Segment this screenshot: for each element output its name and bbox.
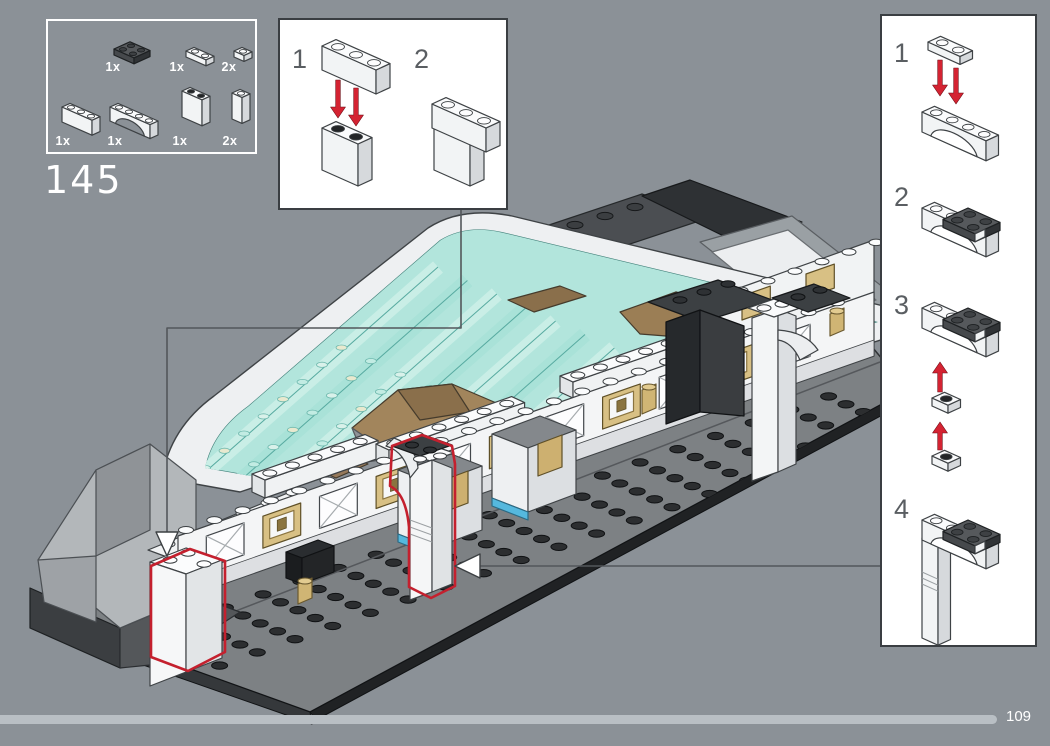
part-qty-white-1x1x2-brick: 2x bbox=[215, 134, 245, 148]
sidebar-step-3-label: 3 bbox=[894, 290, 909, 321]
instruction-page: 1x 1x 2x 1x 1x 1x 2x 145 1 2 1 2 3 4 109 bbox=[0, 0, 1050, 746]
step-number: 145 bbox=[44, 158, 123, 202]
part-qty-white-1x4-arch-brick: 1x bbox=[100, 134, 130, 148]
part-qty-dark-gray-2x2-plate: 1x bbox=[98, 60, 128, 74]
part-qty-white-1x3-brick: 1x bbox=[48, 134, 78, 148]
assembly-canvas bbox=[280, 20, 506, 208]
sidebar-inset: 1 2 3 4 bbox=[880, 14, 1037, 647]
assembly-inset: 1 2 bbox=[278, 18, 508, 210]
part-qty-white-1x2-plate: 1x bbox=[162, 60, 192, 74]
part-qty-white-1x1-plate: 2x bbox=[214, 60, 244, 74]
sidebar-canvas bbox=[882, 16, 1035, 645]
parts-canvas bbox=[48, 21, 255, 152]
progress-bar[interactable] bbox=[0, 715, 997, 724]
assembly-step-2-label: 2 bbox=[414, 44, 429, 75]
sidebar-step-2-label: 2 bbox=[894, 182, 909, 213]
parts-box: 1x 1x 2x 1x 1x 1x 2x bbox=[46, 19, 257, 154]
assembly-step-1-label: 1 bbox=[292, 44, 307, 75]
sidebar-step-4-label: 4 bbox=[894, 494, 909, 525]
part-qty-white-1x2x2-panel: 1x bbox=[165, 134, 195, 148]
page-number: 109 bbox=[1006, 708, 1031, 725]
sidebar-step-1-label: 1 bbox=[894, 38, 909, 69]
